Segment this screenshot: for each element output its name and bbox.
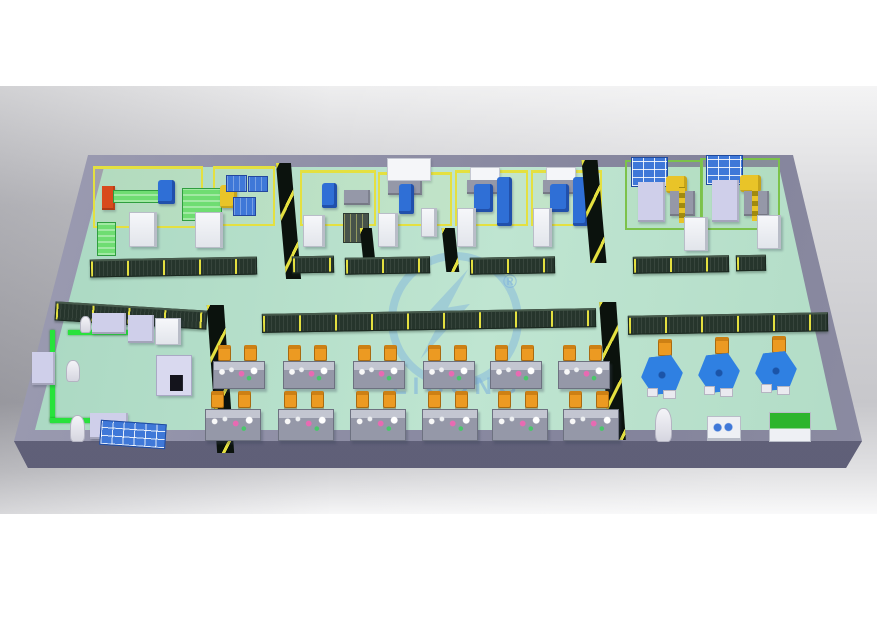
chair-r1c2b: [314, 345, 327, 361]
machine-lavender-2: [712, 180, 739, 222]
overhead-panel-1: [387, 158, 431, 181]
robot-arm-blue-2: [322, 183, 337, 208]
mesh-fence-8: [262, 308, 596, 333]
pallet-blue-1: [226, 175, 247, 192]
loading-station-1: [92, 313, 126, 334]
chair-r1c3b: [384, 345, 397, 361]
rotary-table-1-leg-b: [663, 390, 676, 399]
chair-r2c3b: [383, 391, 396, 408]
chair-r1c6a: [563, 345, 576, 361]
chair-r2c2a: [284, 391, 297, 408]
chair-r1c4a: [428, 345, 441, 361]
factory-layout-render: ® LIGONG: [0, 0, 877, 625]
chair-r2c5b: [525, 391, 538, 408]
chair-r1c3a: [358, 345, 371, 361]
robot-figure-3: [70, 415, 85, 442]
mesh-fence-5: [633, 255, 729, 274]
conveyor-bench-2: [97, 222, 116, 256]
rotary-table-2: [696, 352, 742, 394]
pallet-blue-3: [233, 197, 256, 216]
workbench-r1c4: [423, 361, 475, 389]
bin-rack: [99, 420, 167, 450]
chair-r1c5a: [495, 345, 508, 361]
chair-r2c2b: [311, 391, 324, 408]
green-top-machine: [769, 412, 811, 442]
rotary-table-3-leg-a: [761, 384, 772, 393]
mesh-fence-4: [470, 256, 555, 274]
robot-figure-1: [80, 316, 91, 333]
robot-arm-blue-3: [399, 184, 414, 214]
mesh-fence-9: [628, 312, 828, 334]
chair-r2c4a: [428, 391, 441, 408]
pallet-blue-2: [248, 176, 268, 192]
side-cabinet: [32, 352, 55, 385]
chair-r1c5b: [521, 345, 534, 361]
control-cabinet-8: [684, 217, 708, 251]
workbench-r2c2: [278, 409, 334, 441]
workbench-r2c5: [492, 409, 548, 441]
chair-r2c1b: [238, 391, 251, 408]
gantry-unit-1: [497, 177, 512, 226]
mesh-fence-2: [292, 256, 334, 274]
control-cabinet-2: [195, 212, 223, 248]
conveyor-bench-1: [113, 190, 161, 203]
rotary-table-3-leg-b: [777, 386, 790, 395]
chair-rotary-1: [658, 339, 672, 356]
machine-station-3: [155, 318, 181, 345]
control-cabinet-9: [757, 215, 781, 249]
robot-arm-blue-5: [550, 184, 569, 212]
divider-panel-4: [581, 160, 606, 263]
chair-r2c6b: [596, 391, 609, 408]
mesh-fence-3: [345, 256, 430, 274]
chair-rotary-2: [715, 337, 729, 354]
workbench-r1c1: [213, 361, 265, 389]
workbench-r1c5: [490, 361, 542, 389]
chair-r2c3a: [356, 391, 369, 408]
workbench-r1c3: [353, 361, 405, 389]
chair-r1c6b: [589, 345, 602, 361]
workbench-r2c3: [350, 409, 406, 441]
robot-figure-2: [66, 360, 80, 382]
robot-handler-white: [655, 408, 672, 442]
control-cabinet-4: [378, 213, 398, 247]
chair-rotary-3: [772, 336, 786, 353]
workbench-r1c2: [283, 361, 335, 389]
tester-machine: [707, 416, 741, 441]
workbench-r2c4: [422, 409, 478, 441]
chair-r2c5a: [498, 391, 511, 408]
rotary-table-1-leg-a: [647, 388, 658, 397]
control-cabinet-7: [533, 208, 552, 247]
chair-r1c2a: [288, 345, 301, 361]
control-cabinet-6: [457, 208, 476, 247]
press-machine: [156, 355, 192, 396]
chair-r1c4b: [454, 345, 467, 361]
mesh-fence-1: [90, 257, 257, 278]
workbench-r2c6: [563, 409, 619, 441]
rotary-table-2-leg-b: [720, 388, 733, 397]
machine-lavender-1: [638, 182, 665, 222]
control-cabinet-5: [421, 208, 437, 237]
control-cabinet-3: [303, 215, 325, 247]
workbench-r2c1: [205, 409, 261, 441]
chair-r2c1a: [211, 391, 224, 408]
robot-arm-blue-4: [474, 184, 493, 212]
chair-r1c1a: [218, 345, 231, 361]
chair-r2c4b: [455, 391, 468, 408]
chair-r2c6a: [569, 391, 582, 408]
mesh-fence-6: [736, 255, 766, 272]
chair-r1c1b: [244, 345, 257, 361]
rotary-table-1: [639, 354, 685, 396]
robot-arm-blue-1: [158, 180, 175, 204]
scene-objects-layer: [0, 0, 877, 625]
workbench-r1c6: [558, 361, 610, 389]
work-table-1: [344, 190, 370, 205]
machine-station-2: [128, 315, 154, 343]
rotary-table-2-leg-a: [704, 386, 715, 395]
rotary-table-3: [753, 350, 799, 392]
control-cabinet-1: [129, 212, 157, 247]
